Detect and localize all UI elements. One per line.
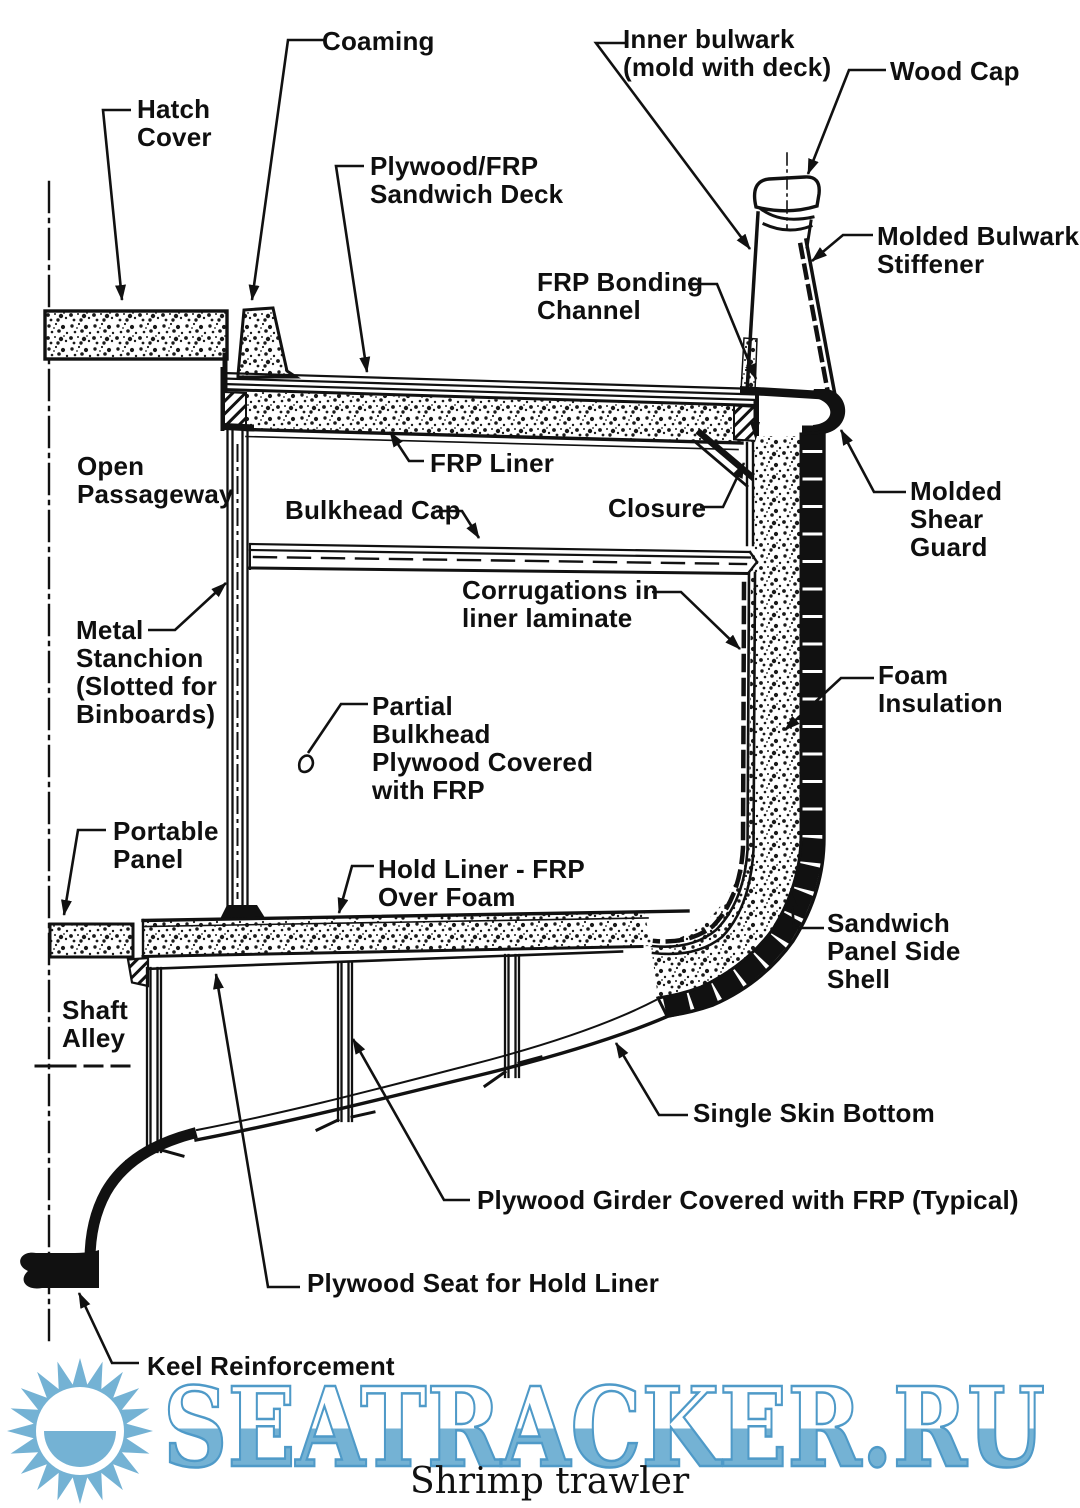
leader-plywood-seat [216, 974, 300, 1287]
label-coaming: Coaming [322, 27, 435, 55]
panel-wedge [128, 958, 148, 986]
bulwark-shape [741, 153, 835, 395]
label-plywood-deck: Plywood/FRP Sandwich Deck [370, 152, 563, 208]
label-partial-bulkhead: Partial Bulkhead Plywood Covered with FR… [372, 692, 593, 804]
leader-portable-panel [64, 830, 106, 915]
bottom-skin-shape [90, 1000, 666, 1260]
hold-liner-shape [143, 911, 688, 969]
girder-2 [317, 963, 374, 1130]
label-keel: Keel Reinforcement [147, 1352, 395, 1380]
label-open-passageway: Open Passageway [77, 452, 234, 508]
label-portable-panel: Portable Panel [113, 817, 219, 873]
leader-single-skin [616, 1043, 688, 1115]
leader-coaming [252, 40, 324, 300]
leader-frp-liner [390, 432, 424, 461]
label-inner-bulwark: Inner bulwark (mold with deck) [623, 25, 831, 81]
leader-stiffener [812, 235, 873, 261]
label-sandwich-panel: Sandwich Panel Side Shell [827, 909, 961, 993]
label-shear-guard: Molded Shear Guard [910, 477, 1080, 561]
label-closure: Closure [608, 494, 706, 522]
label-stiffener: Molded Bulwark Stiffener [877, 222, 1079, 278]
portable-panel-shape [50, 924, 133, 957]
coaming-shape [238, 308, 296, 377]
shrimp-trawler-diagram-page: SEATRACKER.RU Coaming Hatch Cover Plywoo… [0, 0, 1080, 1508]
leader-wood-cap [808, 70, 886, 174]
leader-partial-bulkhead [308, 704, 368, 753]
label-bulkhead-cap: Bulkhead Cap [285, 496, 461, 524]
label-frp-bonding: FRP Bonding Channel [537, 268, 703, 324]
label-shaft-alley: Shaft Alley [62, 996, 128, 1052]
leader-keel [79, 1293, 139, 1363]
label-foam: Foam Insulation [878, 661, 1003, 717]
figure-caption: Shrimp trawler [410, 1462, 689, 1502]
girder-1 [127, 968, 183, 1161]
leader-closure [700, 463, 744, 507]
keel-shape [20, 1250, 99, 1289]
label-wood-cap: Wood Cap [890, 57, 1020, 85]
sun-logo-icon [7, 1358, 153, 1504]
label-hold-liner: Hold Liner - FRP Over Foam [378, 855, 585, 911]
leader-hatch-cover [103, 110, 131, 300]
deck-sandwich-shape [223, 355, 758, 450]
label-frp-liner: FRP Liner [430, 449, 554, 477]
label-stanchion: Metal Stanchion (Slotted for Binboards) [76, 616, 217, 728]
hatch-cover-shape [45, 311, 227, 359]
leader-plywood-girder [353, 1039, 470, 1200]
label-single-skin: Single Skin Bottom [693, 1099, 935, 1127]
leader-hold-liner [339, 866, 374, 913]
label-corrugations: Corrugations in liner laminate [462, 576, 659, 632]
label-plywood-seat: Plywood Seat for Hold Liner [307, 1269, 659, 1297]
label-plywood-girder: Plywood Girder Covered with FRP (Typical… [477, 1186, 1019, 1214]
leader-shear-guard [841, 430, 906, 492]
partial-bulkhead-squiggle [299, 756, 313, 772]
leader-plywood-deck [336, 166, 367, 372]
label-hatch-cover: Hatch Cover [137, 95, 212, 151]
leader-corrugations [652, 592, 740, 649]
bulkhead-cap-shape [250, 544, 757, 574]
